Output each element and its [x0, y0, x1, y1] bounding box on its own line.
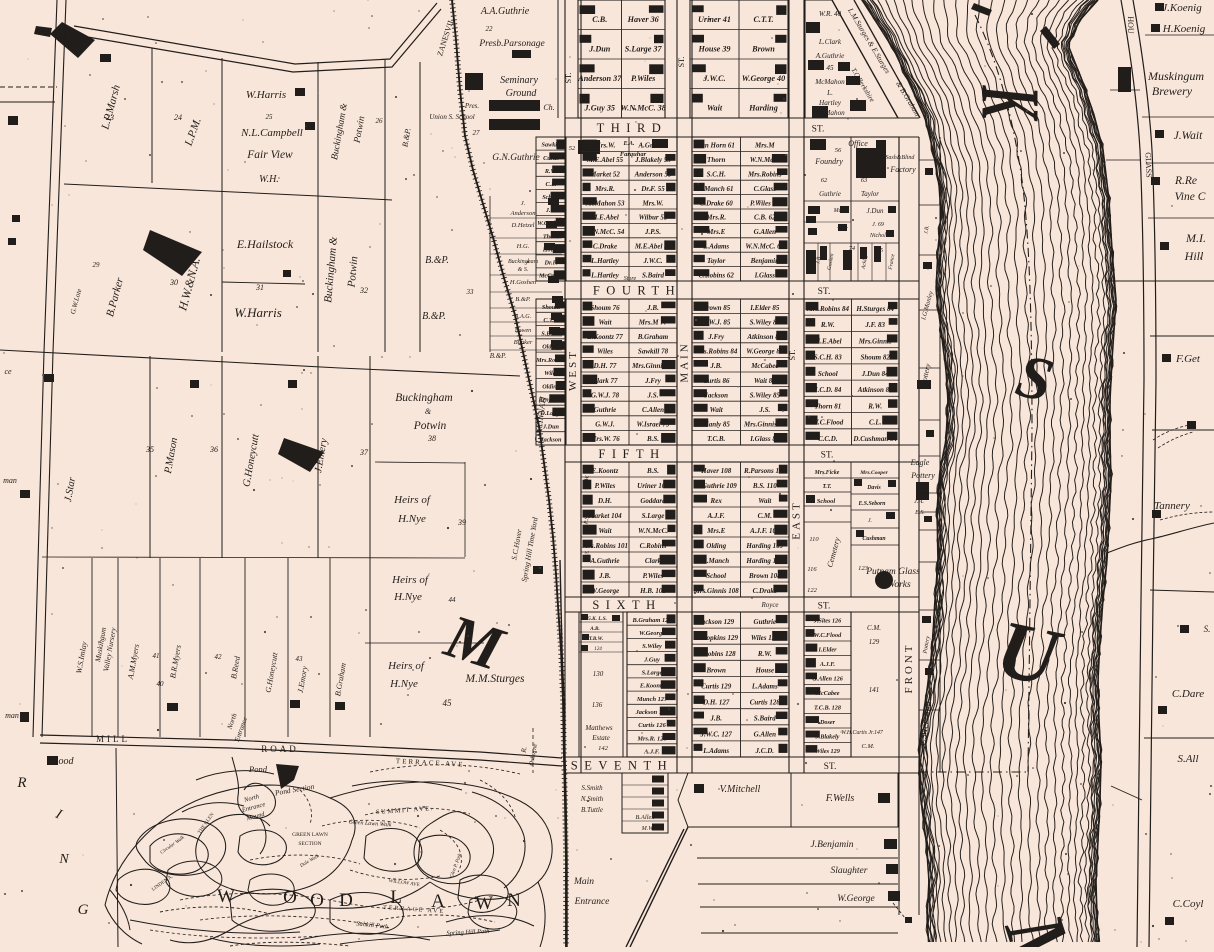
svg-text:J.Fry: J.Fry — [644, 377, 662, 385]
svg-text:B.S.: B.S. — [646, 435, 659, 443]
svg-text:Entrance: Entrance — [574, 897, 610, 907]
svg-text:I.Elder 85: I.Elder 85 — [749, 304, 780, 312]
svg-text:56: 56 — [835, 147, 842, 154]
svg-text:Harding: Harding — [748, 103, 778, 112]
svg-text:C.T.T.: C.T.T. — [753, 15, 773, 24]
svg-text:J.C.D. 84: J.C.D. 84 — [813, 386, 842, 394]
svg-text:J.F. 83: J.F. 83 — [864, 321, 885, 329]
svg-text:Pres.: Pres. — [464, 102, 480, 110]
svg-text:L.: L. — [826, 89, 833, 97]
svg-text:J.Guy 35: J.Guy 35 — [584, 103, 615, 112]
svg-text:Brown: Brown — [751, 44, 775, 53]
svg-text:Anderson 37: Anderson 37 — [577, 74, 622, 83]
svg-text:J.B.: J.B. — [598, 572, 611, 580]
svg-text:39: 39 — [457, 518, 466, 527]
svg-text:A.Guthrie: A.Guthrie — [590, 557, 620, 565]
svg-text:B.S. 110: B.S. 110 — [752, 482, 777, 490]
svg-text:N.Smith: N.Smith — [580, 795, 604, 803]
svg-text:P.Wiles: P.Wiles — [631, 74, 655, 83]
svg-text:36: 36 — [209, 445, 218, 454]
svg-text:Davis: Davis — [866, 485, 881, 491]
svg-text:B.Graham 126: B.Graham 126 — [631, 617, 672, 624]
svg-text:W.George: W.George — [837, 894, 875, 904]
svg-text:School: School — [818, 370, 838, 378]
svg-text:35: 35 — [145, 445, 154, 454]
svg-text:N.L.Campbell: N.L.Campbell — [240, 127, 303, 139]
svg-text:man: man — [5, 711, 19, 720]
svg-text:ST.: ST. — [564, 73, 573, 84]
svg-text:House: House — [754, 666, 774, 674]
svg-text:Potwin: Potwin — [413, 420, 447, 432]
svg-text:FRONT: FRONT — [903, 642, 915, 693]
svg-text:C.L.: C.L. — [869, 419, 882, 427]
svg-text:C.Drake: C.Drake — [593, 243, 617, 251]
svg-text:S.Wiley: S.Wiley — [642, 643, 662, 650]
svg-text:Vine C: Vine C — [1175, 191, 1206, 203]
svg-text:B.&P.: B.&P. — [490, 352, 507, 360]
svg-text:FIFTH: FIFTH — [598, 447, 665, 461]
svg-text:E.S.Seborn: E.S.Seborn — [857, 501, 885, 507]
svg-text:Wiles 129: Wiles 129 — [815, 748, 840, 755]
svg-text:Mrs.W.: Mrs.W. — [642, 199, 664, 207]
svg-text:W.N.McC. 60: W.N.McC. 60 — [745, 243, 784, 251]
svg-text:H.Nye: H.Nye — [397, 513, 426, 525]
svg-text:Rex: Rex — [710, 497, 723, 505]
svg-text:P.Wiles: P.Wiles — [643, 572, 664, 580]
svg-text:G.N.Guthrie: G.N.Guthrie — [492, 153, 540, 163]
svg-text:H.Koenig: H.Koenig — [1162, 23, 1206, 35]
svg-text:S.Smith: S.Smith — [581, 784, 603, 792]
svg-text:Wilbur 55: Wilbur 55 — [639, 214, 668, 222]
svg-text:ROAD: ROAD — [261, 744, 299, 754]
svg-text:N: N — [58, 852, 69, 867]
svg-text:GLASS: GLASS — [1144, 152, 1154, 178]
svg-text:P.Wiles: P.Wiles — [595, 482, 616, 490]
svg-text:F.Get: F.Get — [1175, 353, 1201, 365]
svg-text:MAIN: MAIN — [679, 341, 691, 382]
svg-text:Muskingum: Muskingum — [1147, 69, 1204, 83]
svg-text:Taylor: Taylor — [707, 257, 726, 265]
svg-text:Mrs.Ficke: Mrs.Ficke — [814, 470, 840, 476]
svg-text:L.Clark: L.Clark — [818, 38, 842, 46]
svg-text:S.Baird: S.Baird — [642, 271, 664, 279]
svg-text:43: 43 — [296, 655, 304, 663]
svg-text:Sawkill 78: Sawkill 78 — [638, 348, 669, 356]
svg-text:W.N.McC.: W.N.McC. — [638, 527, 668, 535]
svg-text:B.&P.: B.&P. — [425, 255, 449, 266]
svg-text:Presb.Parsonage: Presb.Parsonage — [478, 39, 544, 49]
svg-text:B.Tuttle: B.Tuttle — [581, 806, 603, 814]
svg-text:32: 32 — [359, 286, 368, 295]
svg-text:J.Wait: J.Wait — [1174, 130, 1203, 142]
svg-text:A.A.Guthrie: A.A.Guthrie — [480, 6, 530, 17]
svg-text:B.&P.: B.&P. — [515, 296, 531, 303]
svg-text:Bunker: Bunker — [514, 339, 533, 346]
svg-text:123: 123 — [858, 565, 869, 572]
svg-text:Guthrie: Guthrie — [754, 618, 777, 626]
svg-text:J.Guy: J.Guy — [643, 656, 660, 663]
svg-text:WEST: WEST — [567, 349, 579, 391]
svg-text:O: O — [283, 887, 297, 908]
svg-text:44: 44 — [449, 596, 457, 604]
svg-text:ST.: ST. — [821, 451, 834, 461]
svg-text:EAST: EAST — [791, 500, 803, 540]
svg-text:E.Hailstock: E.Hailstock — [236, 237, 294, 251]
svg-text:Munch 127: Munch 127 — [636, 696, 668, 703]
svg-text:man: man — [3, 476, 17, 485]
svg-text:Foundry: Foundry — [814, 157, 843, 166]
svg-text:R.W.: R.W. — [820, 321, 835, 329]
svg-text:Dr.F. 55: Dr.F. 55 — [640, 185, 665, 193]
svg-text:School: School — [817, 498, 836, 505]
svg-text:SIXTH: SIXTH — [592, 598, 661, 612]
svg-text:142: 142 — [598, 745, 609, 752]
svg-text:FOURTH: FOURTH — [593, 284, 681, 298]
svg-text:S.Large: S.Large — [642, 512, 665, 520]
svg-text:Mrs.Robins: Mrs.Robins — [747, 171, 782, 179]
svg-text:Thorn: Thorn — [707, 156, 725, 164]
svg-text:G.W.J. 78: G.W.J. 78 — [591, 391, 620, 399]
svg-text:S.C.H.: S.C.H. — [707, 171, 727, 179]
svg-text:B.Graham: B.Graham — [637, 333, 669, 341]
svg-text:S.Wiley 85: S.Wiley 85 — [750, 391, 781, 399]
svg-text:E.Koontz: E.Koontz — [591, 467, 619, 475]
svg-text:W.N.McC. 38: W.N.McC. 38 — [621, 103, 666, 112]
svg-text:Haver 36: Haver 36 — [627, 15, 660, 24]
svg-text:E.S.: E.S. — [914, 510, 925, 516]
svg-text:Mrs.R.: Mrs.R. — [705, 214, 726, 222]
svg-text:J. 69: J. 69 — [872, 222, 884, 228]
svg-text:Factory: Factory — [889, 165, 916, 174]
svg-text:GREEN LAWN: GREEN LAWN — [292, 832, 328, 838]
svg-text:Guthrie: Guthrie — [819, 190, 841, 198]
svg-text:Pottery: Pottery — [910, 471, 935, 480]
svg-text:School: School — [706, 572, 726, 580]
svg-text:Curtis 129: Curtis 129 — [701, 682, 732, 690]
svg-text:22: 22 — [486, 25, 494, 33]
svg-text:S.Baird: S.Baird — [754, 715, 776, 723]
svg-text:G.W.J.: G.W.J. — [595, 421, 615, 429]
svg-text:H.Nye: H.Nye — [393, 591, 422, 603]
svg-text:A.J.F.: A.J.F. — [819, 661, 836, 668]
svg-text:C.Coyl: C.Coyl — [1173, 898, 1204, 910]
svg-text:Ch.: Ch. — [543, 103, 554, 112]
svg-text:Hill: Hill — [1184, 249, 1204, 263]
svg-text:W.Harris: W.Harris — [234, 305, 282, 320]
svg-text:Anderson: Anderson — [510, 210, 536, 217]
svg-text:Putnam Glass: Putnam Glass — [865, 567, 920, 577]
svg-text:L.Hartley: L.Hartley — [590, 271, 620, 279]
svg-text:Clark: Clark — [645, 557, 662, 565]
svg-text:C.M.: C.M. — [867, 624, 881, 632]
svg-text:41: 41 — [153, 652, 160, 660]
svg-text:63: 63 — [861, 177, 868, 184]
svg-text:W.C.Flood: W.C.Flood — [814, 632, 842, 639]
svg-text:Buckingham: Buckingham — [395, 392, 452, 404]
svg-text:Jackson: Jackson — [703, 391, 728, 399]
svg-text:J.Dun: J.Dun — [867, 207, 884, 215]
svg-text:Wait: Wait — [710, 406, 724, 414]
svg-text:& S.: & S. — [518, 267, 529, 273]
svg-text:Market 52: Market 52 — [589, 171, 620, 179]
svg-text:J.A.: J.A. — [914, 498, 924, 505]
svg-text:G.Allen: G.Allen — [754, 228, 776, 236]
svg-text:&: & — [425, 407, 432, 416]
svg-text:Brown: Brown — [705, 666, 726, 674]
svg-text:Estate: Estate — [591, 734, 610, 742]
svg-text:Wait: Wait — [598, 527, 612, 535]
svg-text:Fair View: Fair View — [246, 149, 293, 161]
svg-text:A: A — [431, 891, 445, 912]
svg-text:J.Dun: J.Dun — [542, 423, 560, 430]
svg-text:42: 42 — [215, 653, 223, 661]
svg-text:SEVENTH: SEVENTH — [571, 759, 673, 773]
svg-text:ST.: ST. — [818, 287, 831, 297]
svg-text:HOU: HOU — [1126, 16, 1135, 34]
svg-text:J.: J. — [868, 518, 872, 524]
svg-text:W.H.: W.H. — [259, 174, 279, 185]
svg-text:MILL: MILL — [96, 734, 130, 744]
svg-text:T.B.W.: T.B.W. — [589, 636, 603, 642]
svg-text:J.Dun 84: J.Dun 84 — [861, 370, 889, 378]
svg-text:Goddard: Goddard — [640, 497, 666, 505]
svg-text:S.All: S.All — [1177, 753, 1198, 765]
svg-text:Mrs.Cooper: Mrs.Cooper — [859, 470, 888, 476]
svg-text:116: 116 — [807, 566, 817, 573]
svg-text:124: 124 — [594, 645, 602, 652]
svg-text:Brewery: Brewery — [1152, 84, 1193, 98]
svg-text:Guthrie: Guthrie — [594, 406, 617, 414]
svg-text:A.A.G.: A.A.G. — [514, 314, 531, 320]
svg-text:S.C.H. 83: S.C.H. 83 — [814, 354, 843, 362]
svg-text:Olding: Olding — [706, 542, 726, 550]
svg-text:J.S.: J.S. — [758, 406, 770, 414]
svg-text:T.C.B. 128: T.C.B. 128 — [814, 705, 841, 712]
svg-text:33: 33 — [466, 288, 475, 296]
svg-text:ST.: ST. — [824, 762, 837, 772]
svg-text:A.B.: A.B. — [589, 626, 600, 632]
svg-text:ce: ce — [4, 367, 12, 376]
svg-text:S.Large 37: S.Large 37 — [625, 44, 663, 53]
svg-text:W.George: W.George — [591, 587, 619, 595]
svg-text:L: L — [390, 887, 402, 908]
svg-text:ST.: ST. — [818, 602, 831, 612]
svg-text:SECTION: SECTION — [298, 841, 321, 847]
svg-text:J.Fry: J.Fry — [707, 333, 725, 341]
svg-text:A.J.F.: A.J.F. — [643, 749, 660, 756]
svg-text:C.C.D.: C.C.D. — [818, 435, 838, 443]
svg-text:J.S.: J.S. — [647, 391, 659, 399]
svg-text:McMahon: McMahon — [814, 78, 845, 86]
svg-text:R.Re: R.Re — [1174, 175, 1197, 187]
svg-text:N: N — [507, 890, 521, 911]
svg-text:Wait: Wait — [598, 318, 612, 326]
svg-text:Heirs of: Heirs of — [393, 494, 432, 506]
svg-text:L.Adams: L.Adams — [751, 682, 778, 690]
svg-text:Haver 108: Haver 108 — [700, 467, 732, 475]
svg-text:Shoum 76: Shoum 76 — [590, 304, 620, 312]
svg-text:Bowen: Bowen — [515, 328, 531, 334]
svg-text:B.Allen: B.Allen — [635, 814, 654, 821]
svg-text:Heirs of: Heirs of — [387, 660, 426, 672]
svg-text:Mrs.Ginnis: Mrs.Ginnis — [858, 337, 892, 345]
svg-text:I.Glass: I.Glass — [754, 271, 776, 279]
svg-text:B.&P.: B.&P. — [422, 311, 446, 322]
svg-text:V.Mitchell: V.Mitchell — [720, 784, 761, 795]
svg-text:Royce: Royce — [760, 601, 778, 609]
svg-text:Mrs.R.: Mrs.R. — [594, 185, 615, 193]
svg-text:C.Drake: C.Drake — [753, 587, 777, 595]
svg-text:Buckingham: Buckingham — [508, 259, 539, 265]
svg-text:J.W.C.: J.W.C. — [642, 257, 662, 265]
svg-text:A.Guthrie: A.Guthrie — [815, 52, 845, 60]
svg-text:Store: Store — [624, 276, 637, 282]
svg-text:Union S. School: Union S. School — [429, 113, 474, 121]
svg-text:24: 24 — [174, 113, 182, 122]
svg-text:Taylor: Taylor — [861, 190, 879, 198]
svg-text:G: G — [78, 902, 89, 918]
svg-text:37: 37 — [359, 448, 369, 457]
svg-text:C.B.: C.B. — [592, 15, 607, 24]
svg-text:J.Koenig: J.Koenig — [1162, 2, 1202, 14]
svg-text:Pond: Pond — [248, 764, 268, 774]
svg-text:31: 31 — [255, 283, 264, 292]
svg-text:W.George 84: W.George 84 — [746, 348, 784, 356]
svg-text:38: 38 — [427, 434, 436, 443]
svg-text:62: 62 — [821, 177, 828, 184]
svg-text:ST.: ST. — [677, 57, 686, 68]
svg-text:Curtis 128: Curtis 128 — [750, 699, 781, 707]
svg-text:K: K — [964, 85, 1057, 122]
svg-text:Heirs of: Heirs of — [391, 574, 430, 586]
svg-text:ood: ood — [59, 756, 75, 767]
svg-text:L.Hartley: L.Hartley — [590, 257, 620, 265]
svg-text:D.H. 127: D.H. 127 — [702, 699, 730, 707]
svg-text:40: 40 — [157, 680, 165, 688]
svg-text:ST.: ST. — [788, 350, 797, 361]
svg-text:Main: Main — [573, 877, 594, 887]
svg-text:30: 30 — [169, 278, 178, 287]
svg-text:G.Sash&Blind: G.Sash&Blind — [880, 155, 916, 161]
svg-text:THIRD: THIRD — [597, 121, 668, 135]
svg-text:H.G.: H.G. — [516, 243, 530, 250]
svg-text:Doser: Doser — [819, 719, 836, 726]
svg-text:A.Guthrie: A.Guthrie — [638, 142, 668, 150]
svg-text:House 39: House 39 — [697, 44, 730, 53]
svg-text:141: 141 — [869, 686, 880, 694]
svg-text:J.B.: J.B. — [709, 362, 722, 370]
svg-text:26: 26 — [376, 117, 384, 125]
svg-text:W.Harris: W.Harris — [246, 89, 286, 101]
svg-text:McCabee: McCabee — [750, 362, 778, 370]
svg-text:Benjamin: Benjamin — [750, 257, 780, 265]
svg-text:T.T.: T.T. — [823, 484, 832, 490]
svg-text:Thorn 81: Thorn 81 — [814, 402, 841, 410]
svg-text:Curtis 126: Curtis 126 — [638, 722, 666, 729]
svg-text:110: 110 — [809, 536, 819, 543]
svg-text:C.Glass: C.Glass — [754, 185, 777, 193]
svg-text:Anderson 55: Anderson 55 — [634, 171, 672, 179]
svg-text:R: R — [16, 775, 26, 791]
svg-text:45: 45 — [443, 698, 453, 708]
svg-text:Wait: Wait — [707, 103, 723, 112]
svg-text:52: 52 — [569, 145, 576, 152]
svg-text:J.P.S.: J.P.S. — [644, 228, 661, 236]
svg-text:O: O — [310, 890, 324, 911]
svg-text:Office: Office — [848, 139, 868, 148]
svg-text:I.Elder: I.Elder — [817, 647, 837, 654]
svg-text:Ground: Ground — [506, 88, 538, 99]
svg-text:Mrs.W.: Mrs.W. — [594, 142, 616, 150]
svg-text:C.M.: C.M. — [862, 743, 875, 750]
svg-text:J.: J. — [521, 200, 526, 207]
svg-text:W.George: W.George — [639, 630, 665, 637]
svg-text:C.Dare: C.Dare — [1172, 688, 1204, 700]
svg-text:Seminary: Seminary — [500, 75, 538, 86]
svg-text:C.B. 62: C.B. 62 — [754, 214, 776, 222]
svg-text:Slaughter: Slaughter — [831, 866, 868, 876]
svg-text:W: W — [475, 893, 493, 914]
svg-text:H.Nye: H.Nye — [389, 678, 418, 690]
svg-text:L.Adams: L.Adams — [702, 747, 729, 755]
svg-text:A.J.F.: A.J.F. — [707, 512, 725, 520]
svg-text:D.H. 77: D.H. 77 — [593, 362, 617, 370]
svg-text:23: 23 — [106, 113, 114, 122]
svg-text:29: 29 — [93, 261, 101, 269]
svg-text:Mrs.E: Mrs.E — [706, 527, 725, 535]
svg-text:Uriner 41: Uriner 41 — [698, 15, 731, 24]
svg-text:W.George 40: W.George 40 — [742, 74, 786, 83]
svg-text:Brown 108: Brown 108 — [748, 572, 781, 580]
svg-text:ST.: ST. — [812, 125, 825, 135]
svg-text:H.Goshen: H.Goshen — [509, 279, 536, 286]
svg-text:Hartley: Hartley — [818, 99, 842, 107]
svg-text:122: 122 — [807, 587, 818, 594]
svg-text:J.B.: J.B. — [709, 715, 722, 723]
svg-text:R.W.: R.W. — [757, 650, 772, 658]
svg-text:S.Large: S.Large — [642, 670, 663, 677]
svg-text:E.Koontz: E.Koontz — [639, 683, 665, 690]
svg-text:S.: S. — [1204, 624, 1211, 634]
svg-text:Atkinson 81: Atkinson 81 — [857, 386, 893, 394]
svg-text:F.Wells: F.Wells — [825, 793, 855, 804]
svg-text:D: D — [339, 890, 353, 911]
svg-text:G.K. L.S.: G.K. L.S. — [587, 616, 607, 622]
svg-text:J.Benjamin: J.Benjamin — [810, 840, 853, 850]
svg-text:Wait: Wait — [758, 497, 772, 505]
svg-text:Shoum 82: Shoum 82 — [861, 354, 891, 362]
svg-text:J.C.D.: J.C.D. — [755, 747, 775, 755]
svg-text:136: 136 — [592, 701, 603, 709]
svg-text:27: 27 — [473, 129, 481, 137]
svg-text:J.W.C.: J.W.C. — [702, 74, 725, 83]
svg-text:M.I.: M.I. — [1185, 231, 1206, 245]
svg-text:B.S.: B.S. — [646, 467, 659, 475]
svg-text:W.H.Curtis Jr.147: W.H.Curtis Jr.147 — [841, 729, 884, 736]
svg-text:Wiles: Wiles — [597, 348, 613, 356]
svg-text:T.C.B.: T.C.B. — [707, 435, 725, 443]
svg-text:D.Hetzel: D.Hetzel — [511, 222, 535, 229]
svg-text:Matthews: Matthews — [584, 724, 612, 732]
svg-text:C.M.: C.M. — [758, 512, 773, 520]
svg-text:25: 25 — [266, 113, 274, 121]
svg-text:J.B.: J.B. — [646, 304, 659, 312]
svg-text:W: W — [217, 886, 235, 907]
svg-text:G.Allen: G.Allen — [754, 731, 776, 739]
svg-text:M.W.: M.W. — [641, 826, 654, 832]
svg-text:D.H.: D.H. — [597, 497, 612, 505]
svg-text:129: 129 — [869, 638, 880, 646]
